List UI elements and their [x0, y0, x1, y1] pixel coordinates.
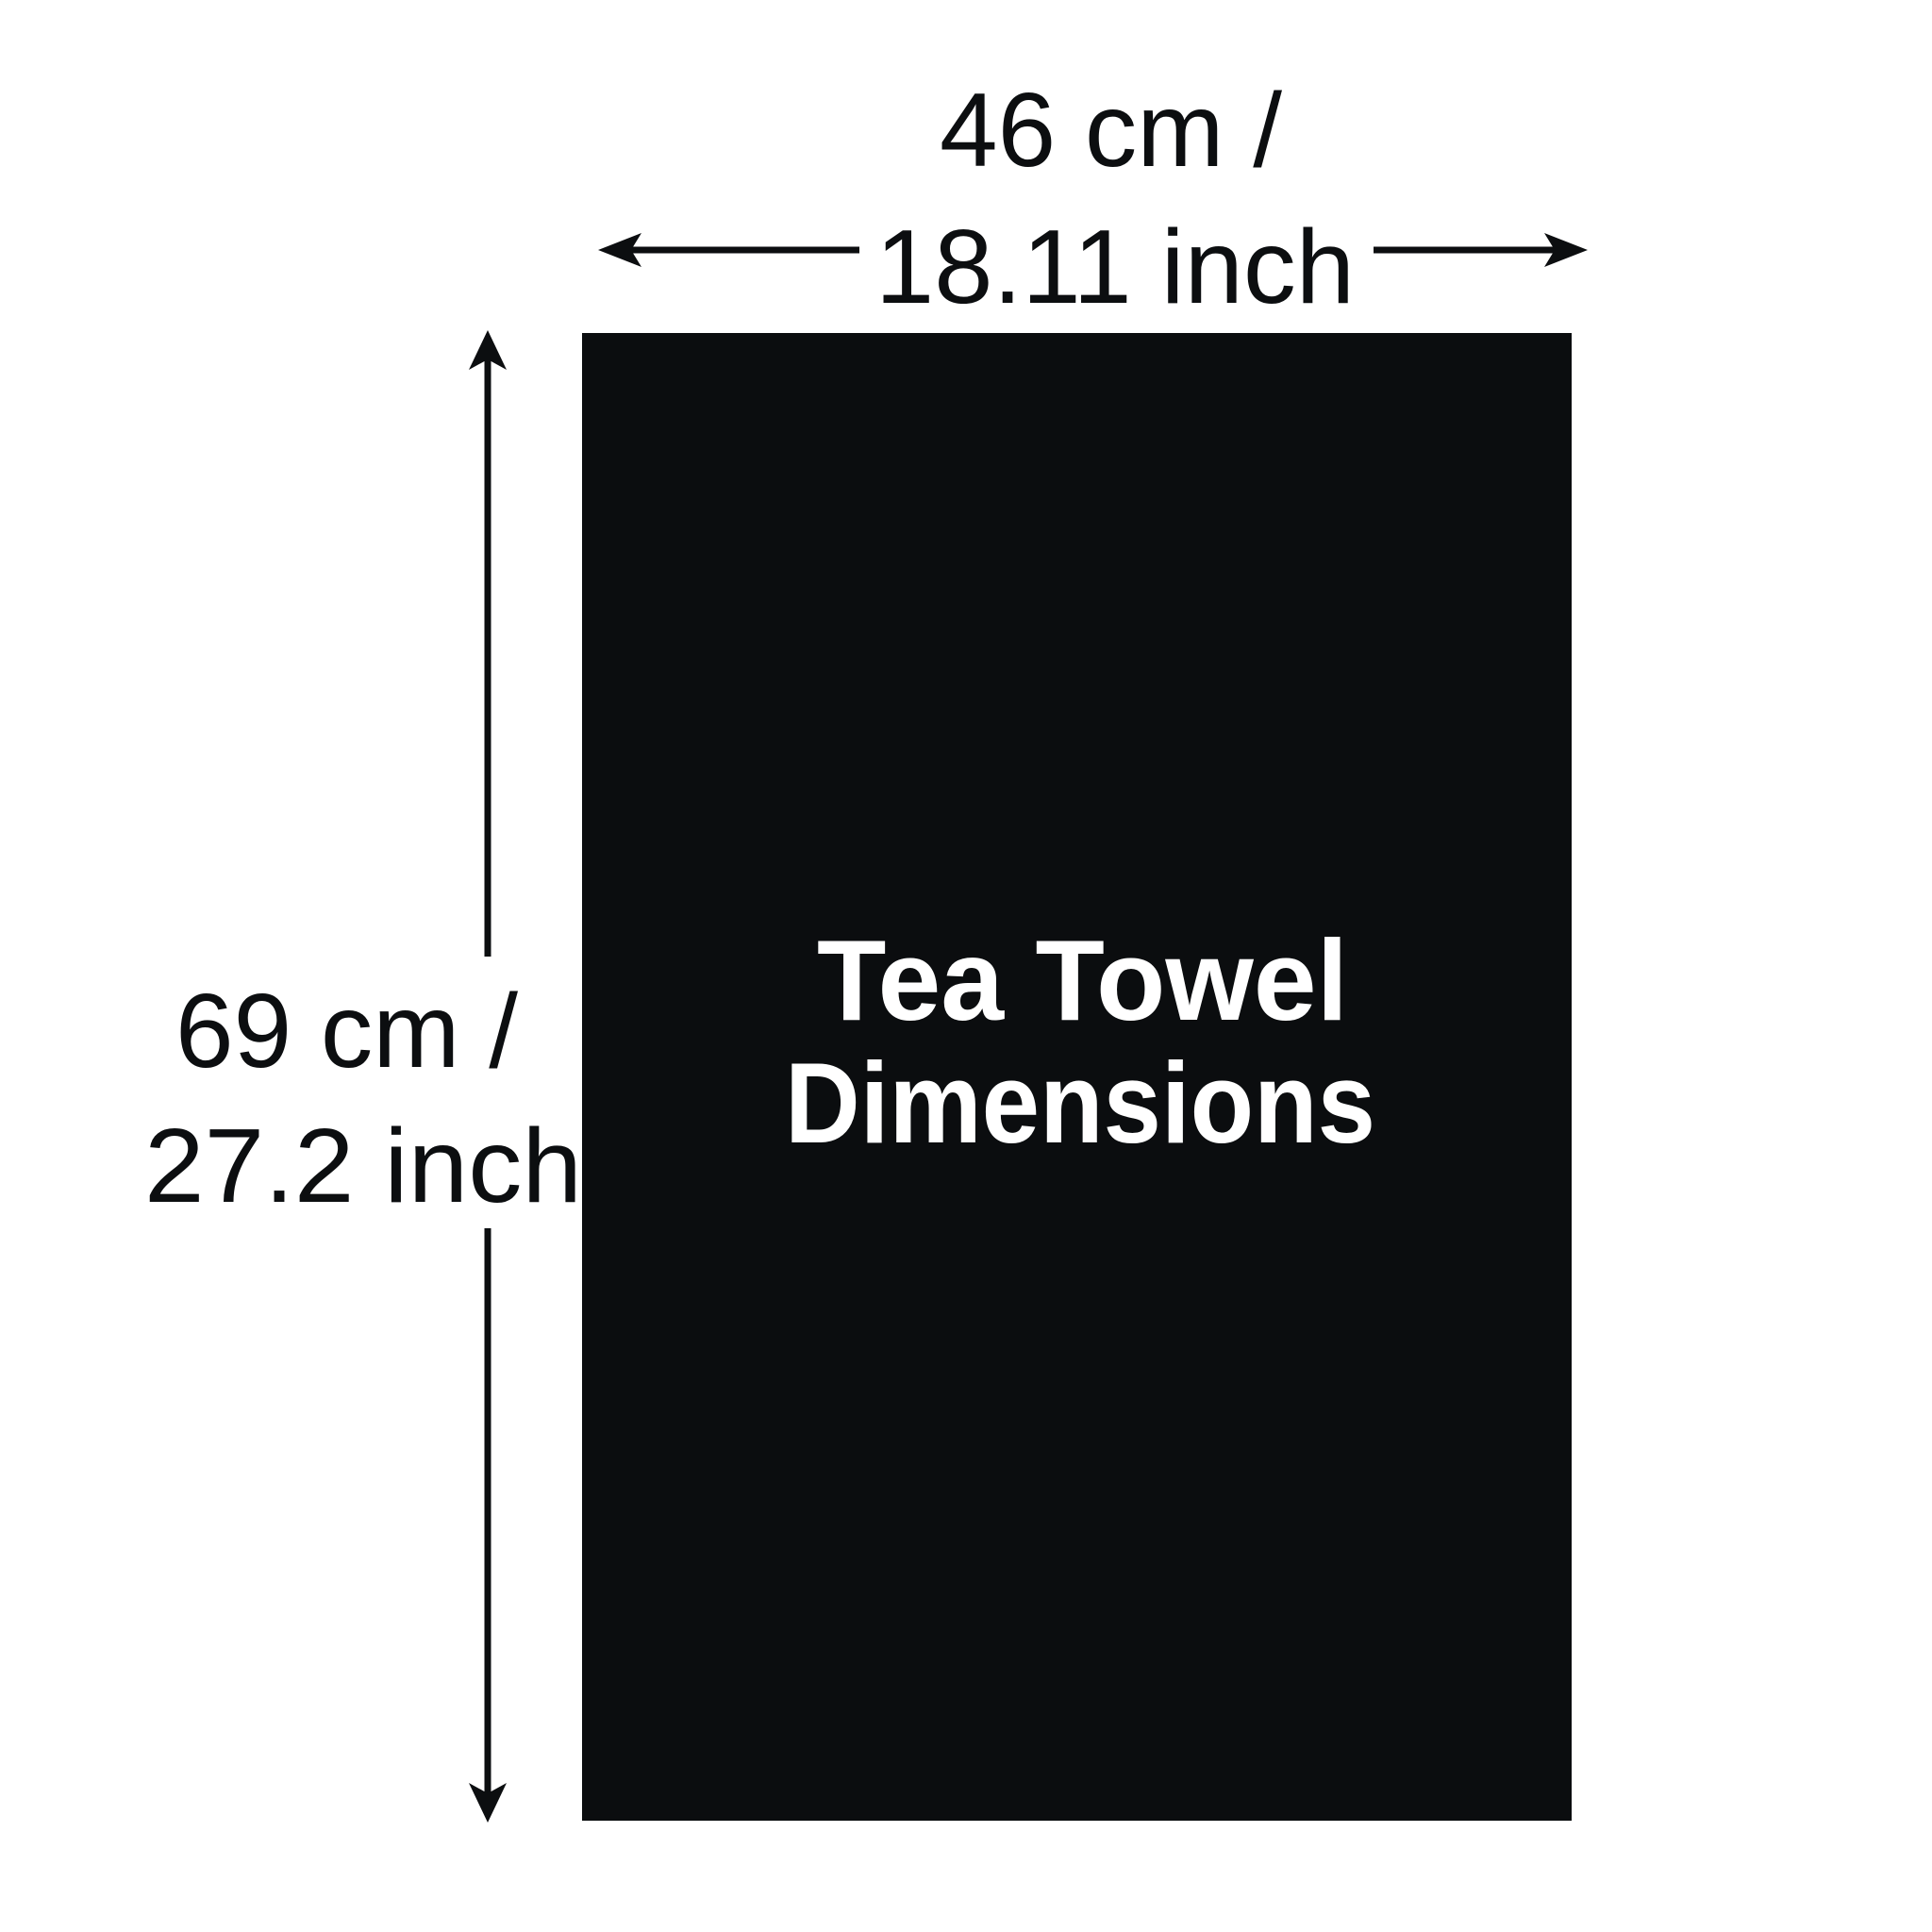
svg-text:69 cm /: 69 cm / — [175, 973, 518, 1090]
svg-text:18.11 inch: 18.11 inch — [875, 208, 1355, 325]
svg-text:27.2 inch: 27.2 inch — [144, 1108, 582, 1224]
svg-text:Tea Towel: Tea Towel — [817, 916, 1348, 1044]
svg-text:Dimensions: Dimensions — [785, 1039, 1375, 1167]
svg-text:46 cm /: 46 cm / — [940, 72, 1282, 189]
